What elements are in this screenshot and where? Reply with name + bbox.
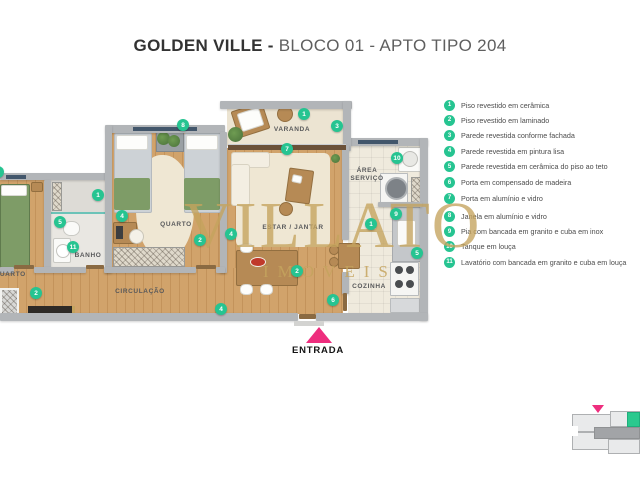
plan-marker-2: 2 — [194, 234, 206, 246]
dining-bowl — [250, 257, 266, 267]
legend-item-9: 9Pia com bancada em granito e cuba em in… — [444, 226, 640, 238]
plan-marker-9: 9 — [390, 208, 402, 220]
plan-marker-6: 6 — [327, 294, 339, 306]
floorplan-page: GOLDEN VILLE - BLOCO 01 - APTO TIPO 204 — [0, 0, 640, 480]
single-bed-right-throw — [184, 178, 220, 210]
stove-burner-1 — [395, 266, 403, 274]
minimap-notch — [570, 426, 578, 436]
wall-bottom-main-2 — [316, 313, 428, 321]
wall-bottom-main-1 — [0, 313, 298, 321]
minimap-corridor — [594, 427, 640, 439]
wall-right-cozinha — [420, 138, 428, 320]
washer-drum — [385, 177, 408, 200]
work-stool — [279, 202, 293, 216]
double-bed — [0, 184, 30, 268]
plan-marker-11: 11 — [67, 241, 79, 253]
legend-item-1: 1Piso revestido em cerâmica — [444, 99, 640, 111]
legend-item-8: 8Janela em alumínio e vidro — [444, 210, 640, 222]
wardrobe — [113, 247, 185, 267]
entrance-label: ENTRADA — [288, 345, 348, 356]
legend-item-11: 11Lavatório com bancada em granito e cub… — [444, 256, 640, 268]
breakfast-chair-2 — [329, 257, 339, 267]
legend-badge-9: 9 — [444, 226, 455, 237]
single-bed-right-pillow — [186, 135, 218, 150]
plan-marker-3: 3 — [331, 120, 343, 132]
stove-burner-2 — [406, 266, 414, 274]
minimap-location-icon — [592, 405, 604, 413]
stove-burner-3 — [395, 280, 403, 288]
label-banho: BANHO — [70, 252, 106, 260]
wall-bottom-left-4 — [216, 267, 225, 273]
label-area-servico: ÁREA SERVIÇO — [349, 167, 385, 183]
legend-text-4: Parede revestida em pintura lisa — [461, 147, 564, 156]
breakfast-chair-1 — [329, 245, 339, 255]
legend-badge-3: 3 — [444, 130, 455, 141]
balcony-plant — [228, 127, 243, 142]
wall-banho-right — [105, 125, 112, 273]
legend-badge-10: 10 — [444, 241, 455, 252]
wall-servico-divider — [378, 202, 422, 207]
wall-cozinha-left-upper — [342, 145, 349, 240]
legend-text-10: Tanque em louça — [461, 242, 516, 251]
label-varanda: VARANDA — [262, 126, 322, 134]
legend-text-8: Janela em alumínio e vidro — [461, 212, 547, 221]
legend-text-11: Lavatório com bancada em granito e cuba … — [461, 258, 626, 267]
plan-marker-7: 7 — [281, 143, 293, 155]
legend-text-2: Piso revestido em laminado — [461, 116, 549, 125]
minimap-unit-bottom-right — [608, 439, 640, 454]
label-quarto-solteiro: QUARTO — [148, 221, 204, 229]
label-cozinha: COZINHA — [350, 283, 388, 291]
label-circulacao: CIRCULAÇÃO — [108, 288, 172, 296]
legend-item-5: 5Parede revestida em cerâmica do piso ao… — [444, 161, 640, 173]
work-desk — [285, 167, 314, 204]
shower-glass — [50, 212, 106, 214]
door-cozinha — [343, 293, 347, 311]
plan-marker-8: 8 — [177, 119, 189, 131]
minimap-highlighted-unit — [627, 412, 640, 427]
legend-badge-2: 2 — [444, 115, 455, 126]
plan-marker-5: 5 — [411, 247, 423, 259]
laundry-tank-bowl — [402, 151, 418, 167]
dining-table — [236, 250, 298, 286]
plan-marker-4: 4 — [116, 210, 128, 222]
wall-banho-left — [44, 180, 51, 270]
door-entrada — [299, 314, 316, 319]
living-plant — [331, 154, 340, 163]
legend-item-3: 3Parede revestida conforme fachada — [444, 130, 640, 142]
legend: 1Piso revestido em cerâmica2Piso revesti… — [444, 99, 640, 272]
legend-text-3: Parede revestida conforme fachada — [461, 131, 575, 140]
wall-top-varanda — [220, 101, 352, 109]
legend-badge-6: 6 — [444, 177, 455, 188]
wall-bottom-left-2 — [34, 267, 86, 273]
shaft-hatch-banho — [52, 182, 62, 211]
legend-badge-5: 5 — [444, 161, 455, 172]
plan-marker-2: 2 — [30, 287, 42, 299]
legend-text-6: Porta em compensado de madeira — [461, 178, 571, 187]
legend-item-10: 10Tanque em louça — [444, 241, 640, 253]
label-quarto-casal: QUARTO — [0, 271, 28, 279]
door-quarto-solteiro — [196, 265, 216, 269]
legend-text-9: Pia com bancada em granito e cuba em ino… — [461, 227, 603, 236]
legend-badge-7: 7 — [444, 193, 455, 204]
single-bed-left-throw — [114, 178, 150, 210]
entrance-arrow-icon — [306, 327, 332, 343]
legend-item-7: 7Porta em alumínio e vidro — [444, 192, 640, 204]
legend-badge-4: 4 — [444, 146, 455, 157]
plan-marker-4: 4 — [215, 303, 227, 315]
wall-cozinha-left-lower — [342, 272, 349, 294]
legend-text-1: Piso revestido em cerâmica — [461, 101, 549, 110]
plan-marker-2: 2 — [291, 265, 303, 277]
single-bed-left-pillow — [116, 135, 148, 150]
legend-text-5: Parede revestida em cerâmica do piso ao … — [461, 162, 608, 171]
nightstand — [31, 182, 43, 192]
plan-marker-1: 1 — [298, 108, 310, 120]
plan-marker-1: 1 — [365, 218, 377, 230]
door-quarto-casal — [14, 265, 34, 269]
legend-badge-1: 1 — [444, 100, 455, 111]
desk-monitor — [116, 226, 123, 239]
breakfast-table — [338, 243, 360, 269]
plan-marker-4: 4 — [225, 228, 237, 240]
stove — [390, 262, 419, 296]
legend-badge-11: 11 — [444, 257, 455, 268]
legend-item-4: 4Parede revestida em pintura lisa — [444, 145, 640, 157]
kitchen-sink — [397, 220, 416, 246]
stove-burner-4 — [406, 280, 414, 288]
door-banho — [86, 265, 104, 269]
wall-estar-left — [220, 132, 227, 273]
desk-chair — [129, 229, 144, 244]
plan-marker-1: 1 — [92, 189, 104, 201]
dining-chair-2 — [260, 284, 273, 295]
dining-chair-3 — [240, 243, 253, 253]
legend-badge-8: 8 — [444, 211, 455, 222]
entry-mat — [0, 288, 19, 315]
double-bed-pillow — [1, 185, 27, 196]
wall-bottom-left-3 — [104, 267, 196, 273]
dining-chair-1 — [240, 284, 253, 295]
minimap — [568, 402, 640, 460]
fridge — [390, 298, 420, 313]
sofa-chaise — [231, 164, 250, 206]
legend-text-7: Porta em alumínio e vidro — [461, 194, 543, 203]
window-quarto-casal — [6, 175, 26, 179]
planter-plant-2 — [168, 135, 180, 147]
window-area-servico — [358, 140, 398, 144]
label-estar-jantar: ESTAR / JANTAR — [254, 224, 332, 232]
plan-marker-10: 10 — [391, 152, 403, 164]
legend-item-6: 6Porta em compensado de madeira — [444, 177, 640, 189]
entry-threshold — [294, 321, 324, 326]
legend-item-2: 2Piso revestido em laminado — [444, 114, 640, 126]
plan-marker-5: 5 — [54, 216, 66, 228]
